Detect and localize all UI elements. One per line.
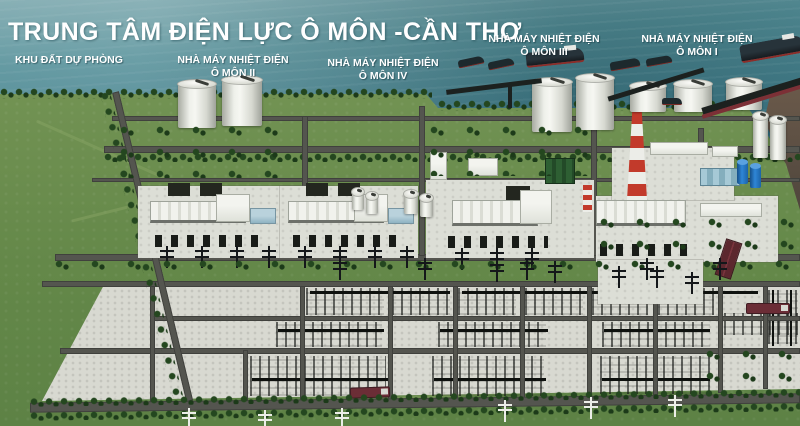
busbar (462, 291, 602, 294)
water-tank (366, 196, 378, 214)
yard-road (520, 283, 525, 402)
boat (662, 98, 682, 105)
label-reserve-text: KHU ĐẤT DỰ PHÒNG (15, 54, 123, 66)
label-omon2: NHÀ MÁY NHIỆT ĐIỆN Ô MÔN II (168, 54, 298, 79)
transmission-tower (548, 261, 562, 283)
field-trees (120, 126, 300, 178)
plant-building (650, 142, 708, 155)
white-pylon (668, 395, 682, 417)
busbar (434, 378, 546, 381)
admin-building (250, 208, 276, 224)
shore-tree-row (0, 88, 432, 99)
busbar (278, 329, 384, 332)
transmission-tower (333, 258, 347, 280)
label-omon3-line2: Ô MÔN III (480, 46, 608, 59)
small-striped-stack (583, 185, 592, 212)
yard-road (388, 283, 393, 402)
yard-road (300, 283, 305, 402)
transformer-row (448, 236, 548, 248)
transmission-tower (520, 258, 534, 280)
transmission-tower (490, 260, 504, 282)
label-reserve-land: KHU ĐẤT DỰ PHÒNG (8, 54, 130, 67)
transmission-tower (713, 258, 727, 280)
lng-tank-omon2 (178, 84, 216, 128)
label-omon2-line1: NHÀ MÁY NHIỆT ĐIỆN (168, 54, 298, 67)
plant-building (700, 203, 762, 217)
road (419, 106, 425, 256)
transmission-tower (418, 258, 432, 280)
cooling-basin (700, 168, 740, 186)
field-trees (600, 218, 796, 260)
white-pylon (182, 408, 196, 426)
yard-road (587, 283, 592, 399)
label-omon3-line1: NHÀ MÁY NHIỆT ĐIỆN (480, 33, 608, 46)
label-omon1: NHÀ MÁY NHIỆT ĐIỆN Ô MÔN I (633, 33, 761, 58)
yard-road (453, 283, 458, 402)
label-omon2-line2: Ô MÔN II (168, 67, 298, 80)
lng-tank-omon3 (532, 82, 572, 132)
switchyard-bay (276, 322, 382, 347)
boiler-structure (168, 183, 190, 196)
tank-omon1 (753, 116, 768, 158)
white-pylon (258, 410, 272, 426)
yard-road (150, 316, 800, 321)
label-omon4-line2: Ô MÔN IV (318, 70, 448, 83)
plant-building (216, 194, 250, 222)
lng-tank-omon3 (576, 78, 614, 130)
page-title: TRUNG TÂM ĐIỆN LỰC Ô MÔN -CẦN THƠ (8, 18, 522, 47)
field-trees (706, 350, 800, 390)
transmission-tower (640, 258, 654, 280)
boiler-structure (306, 183, 328, 196)
white-pylon (498, 400, 512, 422)
lng-tank-omon2 (222, 80, 262, 126)
label-omon1-line2: Ô MÔN I (633, 46, 761, 59)
plant-building (520, 190, 552, 224)
white-pylon (335, 408, 349, 426)
label-omon3: NHÀ MÁY NHIỆT ĐIỆN Ô MÔN III (480, 33, 608, 58)
truck (746, 303, 790, 314)
water-tank (420, 198, 433, 217)
label-omon1-line1: NHÀ MÁY NHIỆT ĐIỆN (633, 33, 761, 46)
tank-omon1 (770, 120, 786, 160)
white-pylon (584, 397, 598, 419)
switchyard-bay (432, 356, 544, 396)
blue-tank (737, 162, 748, 184)
busbar (252, 378, 388, 381)
label-omon4: NHÀ MÁY NHIỆT ĐIỆN Ô MÔN IV (318, 57, 448, 82)
blue-tank (750, 166, 761, 188)
water-tank (352, 192, 364, 210)
field-trees (430, 126, 590, 176)
plant-building (712, 146, 738, 157)
busbar (310, 291, 450, 294)
water-tank (404, 194, 418, 214)
jetty-trestle (508, 86, 512, 108)
label-omon4-line1: NHÀ MÁY NHIỆT ĐIỆN (318, 57, 448, 70)
site-plan-rendering: TRUNG TÂM ĐIỆN LỰC Ô MÔN -CẦN THƠ KHU ĐẤ… (0, 0, 800, 426)
